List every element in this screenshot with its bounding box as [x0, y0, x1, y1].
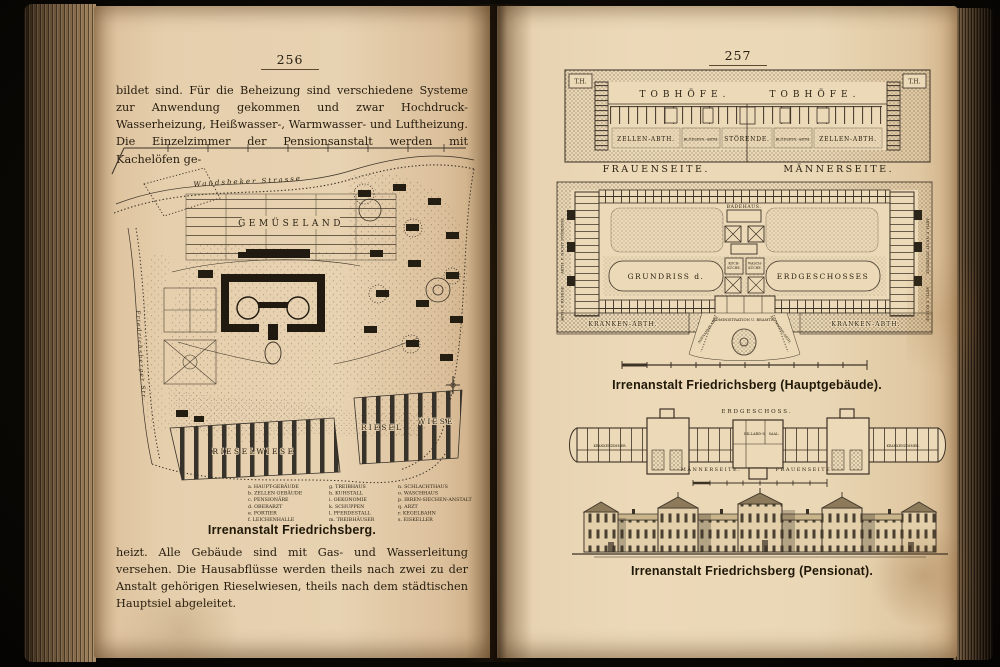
- legend-entry: c. PENSIONÄRE: [248, 496, 289, 503]
- bloeds-left-label: BLÖDSINN.-ABTH.: [683, 137, 718, 142]
- street-label: Wandsbeker Strasse: [193, 174, 302, 188]
- riesel-right-label-a: RIESEL: [361, 423, 403, 432]
- riesel-right-label-b: WIESE: [418, 417, 455, 426]
- legend-entry: h. KUHSTALL: [329, 491, 364, 497]
- stair-tower-left: [595, 82, 608, 150]
- scale-bar-pension: [693, 479, 827, 487]
- book-page-edges-left: [24, 4, 96, 662]
- map-caption: Irrenanstalt Friedrichsberg.: [94, 523, 490, 537]
- garden-oval: [732, 329, 756, 355]
- legend-entry: g. TREIBHAUS: [329, 484, 366, 490]
- grundriss-label: GRUNDRISS d.: [628, 272, 705, 281]
- book-page-edges-right: [953, 8, 993, 660]
- pensionat-plan: ERDGESCHOSS. BILLARD-S. SAAL. KRANKENZIM…: [565, 404, 950, 489]
- pensionat-elevation: [570, 494, 950, 562]
- zellen-left-label: ZELLEN-ABTH.: [617, 136, 675, 143]
- page-number-left: 256: [261, 52, 319, 70]
- stair-tower-right: [887, 82, 900, 150]
- seite-labels-row: FRAUENSEITE. MÄNNERSEITE.: [565, 164, 930, 175]
- cell-block-plan: T.H. T.H. TOBHÖFE. TOBHÖFE. ZELLEN-ABTH.…: [565, 70, 930, 162]
- map-legend: a. HAUPT-GEBÄUDE b. ZELLEN GEBÄUDE c. PE…: [248, 483, 473, 523]
- west-wing: [575, 192, 599, 316]
- kranken-right-label: KRANKEN-ABTH.: [831, 321, 900, 328]
- site-plan-map: Wandsbeker Strasse Friedrichsberger Str.…: [108, 132, 484, 526]
- open-book-photo: 256 bildet sind. Für die Beheizung sind …: [0, 0, 1000, 667]
- billard-label: BILLARD-S.: [744, 432, 766, 436]
- side-right-top-label: ABTH. F. NICHT STÖRENDE: [926, 217, 931, 274]
- maennerseite-label: MÄNNERSEITE.: [748, 164, 931, 175]
- krankenzimmer-left-label: KRANKENZIMMER.: [593, 444, 626, 448]
- legend-entry: o. WASCHHAUS: [398, 491, 438, 497]
- page-number-right: 257: [709, 48, 767, 66]
- main-plan-caption: Irrenanstalt Friedrichsberg (Hauptgebäud…: [547, 378, 947, 392]
- tobhoefe-left-label: TOBHÖFE.: [640, 88, 731, 100]
- east-wing: [890, 192, 914, 316]
- legend-entry: n. SCHLACHTHAUS: [398, 484, 448, 490]
- courtyard-right: [766, 208, 878, 252]
- krankenzimmer-right-label: KRANKENZIMMER.: [886, 444, 919, 448]
- center-pavilion: [738, 488, 782, 552]
- erdgeschoss-label: ERDGESCHOSS.: [721, 409, 792, 415]
- legend-entry: b. ZELLEN GEBÄUDE: [248, 490, 303, 497]
- legend-entry: p. IRREN-SIECHEN-ANSTALT: [398, 497, 473, 503]
- zellen-right-label: ZELLEN-ABTH.: [819, 136, 877, 143]
- scale-bar-main: [622, 360, 867, 370]
- map-north-fence: [112, 144, 466, 174]
- main-building-plan: ABTH. F. NICHT STÖRENDE ABTH. F. RUHIGE …: [557, 182, 932, 372]
- legend-entry: m. TREIBHÄUSER: [329, 516, 375, 523]
- bloeds-right-label: BLÖDSINN.-ABTH.: [775, 137, 810, 142]
- pensionat-caption: Irrenanstalt Friedrichsberg (Pensionat).: [552, 564, 952, 578]
- legend-entry: d. OBERARZT: [248, 504, 283, 510]
- wasch-label-b: KÜCHE.: [748, 265, 762, 270]
- koch-label-b: KÜCHE.: [727, 265, 741, 270]
- courtyard-left: [611, 208, 723, 252]
- page-257: 257 T.H. T.H. TOBHÖFE: [497, 6, 957, 658]
- north-corridor: [599, 190, 890, 203]
- saal-label: SAAL.: [769, 432, 780, 436]
- pension-frauenseite-label: FRAUENSEITE.: [776, 467, 835, 473]
- frauenseite-label: FRAUENSEITE.: [565, 164, 748, 175]
- legend-entry: k. SCHUPPEN: [329, 504, 364, 510]
- body-text-bottom: heizt. Alle Gebäude sind mit Gas- und Wa…: [116, 544, 468, 613]
- th-right-label: T.H.: [908, 79, 920, 86]
- riesel-left-label: RIESELWIESE: [212, 447, 295, 456]
- administration-label: ADMINISTRATION U. BEAMTE.: [712, 317, 775, 322]
- erdgeschosses-label: ERDGESCHOSSES: [777, 272, 869, 281]
- gemueseland-label: GEMÜSELAND: [238, 217, 344, 229]
- badehaus-label: BADEHAUS.: [727, 204, 762, 210]
- pension-maennerseite-label: MÄNNERSEITE.: [681, 466, 742, 473]
- end-bay-left: [570, 428, 578, 462]
- legend-entry: l. PFERDESTALL: [329, 510, 371, 516]
- side-left-top-label: ABTH. F. NICHT STÖRENDE: [560, 218, 565, 275]
- wasch-label-a: WASCH-: [748, 262, 762, 266]
- legend-entry: r. KEGELBAHN: [398, 510, 436, 516]
- legend-entry: i. OEKONOMIE: [329, 497, 367, 503]
- tobhoefe-right-label: TOBHÖFE.: [770, 88, 861, 100]
- koch-label-a: KOCH-: [728, 262, 739, 266]
- legend-entry: a. HAUPT-GEBÄUDE: [248, 483, 299, 490]
- th-left-label: T.H.: [574, 79, 586, 86]
- legend-entry: q. ARZT: [398, 504, 419, 510]
- page-256: 256 bildet sind. Für die Beheizung sind …: [94, 6, 490, 658]
- end-bay-right: [938, 428, 946, 462]
- legend-entry: e. PORTIER: [248, 510, 277, 516]
- kranken-left-label: KRANKEN-ABTH.: [588, 321, 657, 328]
